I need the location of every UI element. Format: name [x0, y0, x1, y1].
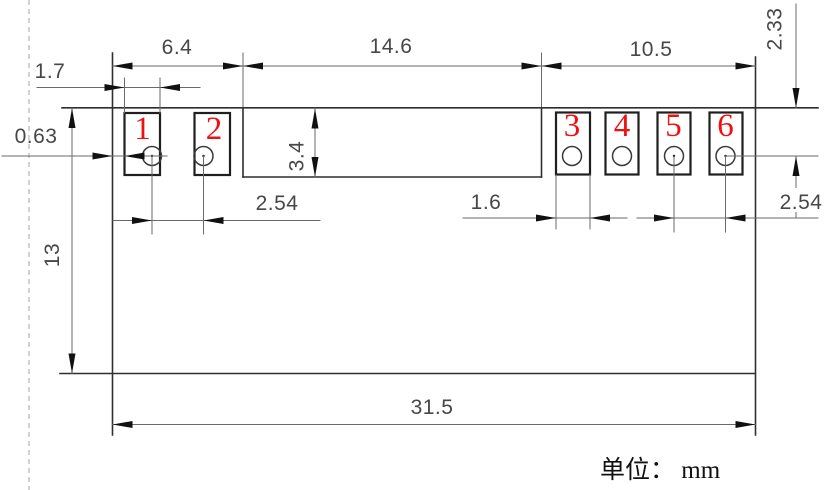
arrowhead	[522, 63, 542, 70]
dim-label-2-54-left: 2.54	[256, 192, 299, 215]
arrowhead	[590, 215, 610, 222]
arrowhead	[204, 217, 224, 224]
module-body-outline	[60, 53, 818, 435]
unit-note: 单位： mm	[600, 456, 721, 484]
arrowhead	[312, 109, 319, 129]
arrowhead	[113, 421, 133, 428]
arrowhead	[132, 217, 152, 224]
dim-right-hole-pitch: 2.54	[637, 156, 830, 232]
arrowhead	[160, 84, 180, 91]
dim-label-1-7: 1.7	[35, 60, 66, 83]
hole-3	[563, 147, 582, 166]
arrowhead	[536, 215, 556, 222]
arrowhead	[793, 88, 800, 108]
dim-notch-depth: 3.4	[286, 108, 319, 177]
dim-label-0-63: 0.63	[15, 125, 58, 148]
arrowhead	[542, 63, 562, 70]
dim-label-13: 13	[41, 243, 64, 267]
pad-1-number: 1	[134, 111, 151, 147]
arrowhead	[93, 153, 113, 160]
arrowhead	[243, 63, 263, 70]
pad-4-number: 4	[614, 108, 631, 144]
hole-4	[613, 147, 632, 166]
pad-5-number: 5	[665, 108, 682, 144]
arrowhead	[69, 354, 76, 374]
dim-label-10-5: 10.5	[630, 38, 673, 61]
dim-body-width: 31.5	[113, 396, 756, 428]
dim-label-3-4: 3.4	[286, 141, 309, 172]
dim-label-6-4: 6.4	[162, 36, 193, 59]
dim-label-31-5: 31.5	[411, 396, 454, 419]
dim-label-1-6: 1.6	[471, 191, 502, 214]
dimension-drawing: 6.4 14.6 10.5 1.7 0.63 3.4 13 2.	[0, 0, 836, 490]
technical-drawing-page: 6.4 14.6 10.5 1.7 0.63 3.4 13 2.	[0, 0, 836, 490]
dim-label-2-33: 2.33	[764, 8, 787, 51]
pad-6-number: 6	[717, 108, 734, 144]
arrowhead	[105, 84, 125, 91]
arrowhead	[736, 63, 756, 70]
arrowhead	[793, 156, 800, 176]
arrowhead	[726, 215, 746, 222]
arrowhead	[223, 63, 243, 70]
arrowhead	[113, 63, 133, 70]
dim-label-2-54-right: 2.54	[780, 191, 823, 214]
dim-pad3-width: 1.6	[463, 175, 627, 229]
arrowhead	[736, 421, 756, 428]
pad-2-number: 2	[206, 111, 223, 147]
arrowhead	[654, 215, 674, 222]
arrowhead	[125, 153, 145, 160]
dim-label-14-6: 14.6	[370, 35, 413, 58]
arrowhead	[312, 157, 319, 177]
pad-3-number: 3	[564, 108, 581, 144]
arrowhead	[69, 108, 76, 128]
dim-hole-offset: 2.33	[764, 4, 800, 218]
dim-top-sections: 6.4 14.6 10.5	[113, 35, 756, 70]
dim-pad1-width: 1.7	[35, 60, 200, 113]
